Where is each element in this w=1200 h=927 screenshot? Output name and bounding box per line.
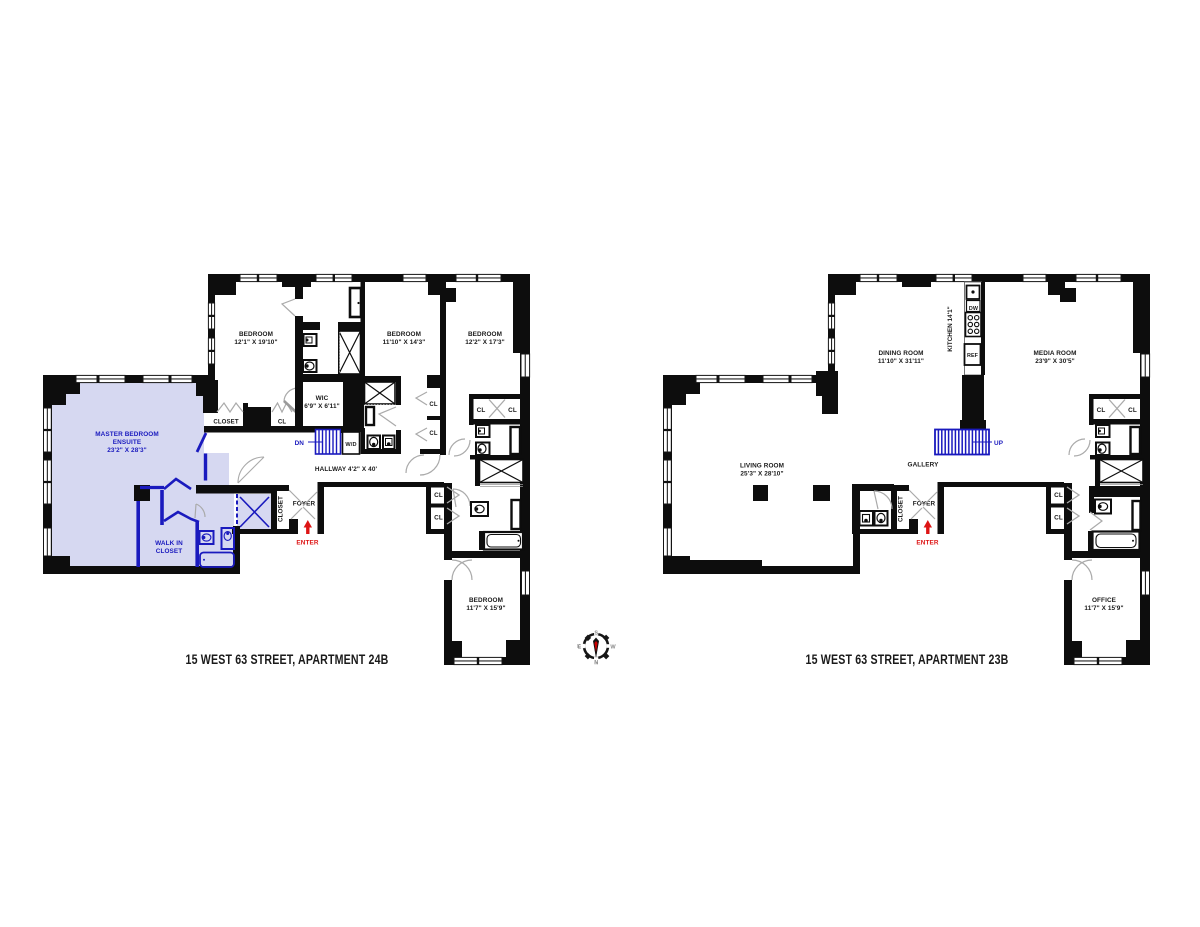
svg-text:W/D: W/D: [345, 442, 356, 448]
svg-text:BEDROOM: BEDROOM: [387, 331, 421, 338]
svg-text:25'3" X 28'10": 25'3" X 28'10": [740, 471, 783, 478]
svg-text:WALK IN: WALK IN: [155, 540, 183, 547]
svg-text:W: W: [610, 644, 616, 650]
svg-text:ENTER: ENTER: [916, 540, 938, 547]
svg-text:UP: UP: [994, 440, 1004, 447]
svg-text:ENTER: ENTER: [296, 540, 318, 547]
svg-text:BEDROOM: BEDROOM: [468, 331, 502, 338]
svg-text:BEDROOM: BEDROOM: [239, 331, 273, 338]
svg-text:15 WEST 63 STREET, APARTMENT 2: 15 WEST 63 STREET, APARTMENT 23B: [806, 652, 1009, 667]
svg-text:15 WEST 63 STREET, APARTMENT 2: 15 WEST 63 STREET, APARTMENT 24B: [186, 652, 389, 667]
svg-text:MEDIA ROOM: MEDIA ROOM: [1033, 350, 1076, 357]
svg-text:MASTER BEDROOM: MASTER BEDROOM: [95, 431, 159, 438]
svg-text:OFFICE: OFFICE: [1092, 597, 1117, 604]
svg-text:DW: DW: [969, 306, 979, 312]
svg-text:CLOSET: CLOSET: [898, 496, 905, 522]
svg-text:12'1" X 19'10": 12'1" X 19'10": [234, 339, 277, 346]
svg-text:BEDROOM: BEDROOM: [469, 597, 503, 604]
svg-text:LIVING ROOM: LIVING ROOM: [740, 463, 784, 470]
svg-text:ENSUITE: ENSUITE: [113, 439, 142, 446]
svg-text:FOYER: FOYER: [913, 501, 936, 508]
svg-text:FOYER: FOYER: [293, 501, 316, 508]
svg-text:GALLERY: GALLERY: [908, 462, 940, 469]
svg-text:S: S: [594, 630, 598, 636]
svg-text:CL: CL: [429, 402, 437, 408]
svg-text:WIC: WIC: [316, 395, 329, 402]
svg-text:CLOSET: CLOSET: [213, 419, 238, 426]
svg-text:23'2" X 28'3": 23'2" X 28'3": [107, 447, 147, 454]
svg-text:11'10" X 31'11": 11'10" X 31'11": [878, 358, 924, 365]
svg-text:KITCHEN 14'1": KITCHEN 14'1": [947, 306, 954, 351]
svg-text:CL: CL: [278, 419, 287, 426]
svg-text:CL: CL: [429, 431, 437, 437]
svg-text:E: E: [578, 644, 582, 650]
svg-text:REF: REF: [967, 353, 979, 359]
svg-text:N: N: [594, 660, 598, 666]
svg-text:HALLWAY 4'2" X 40': HALLWAY 4'2" X 40': [315, 466, 378, 473]
svg-text:DINING ROOM: DINING ROOM: [878, 350, 923, 357]
svg-text:CLOSET: CLOSET: [278, 496, 285, 522]
svg-text:11'7" X 15'9": 11'7" X 15'9": [1084, 605, 1123, 612]
svg-text:DN: DN: [295, 440, 305, 447]
svg-text:6'9" X 6'11": 6'9" X 6'11": [304, 403, 340, 410]
svg-text:12'2" X 17'3": 12'2" X 17'3": [465, 339, 505, 346]
svg-text:CLOSET: CLOSET: [156, 548, 183, 555]
svg-text:11'7" X 15'9": 11'7" X 15'9": [466, 605, 505, 612]
svg-text:11'10" X 14'3": 11'10" X 14'3": [383, 339, 426, 346]
svg-text:23'9" X 30'5": 23'9" X 30'5": [1035, 358, 1075, 365]
